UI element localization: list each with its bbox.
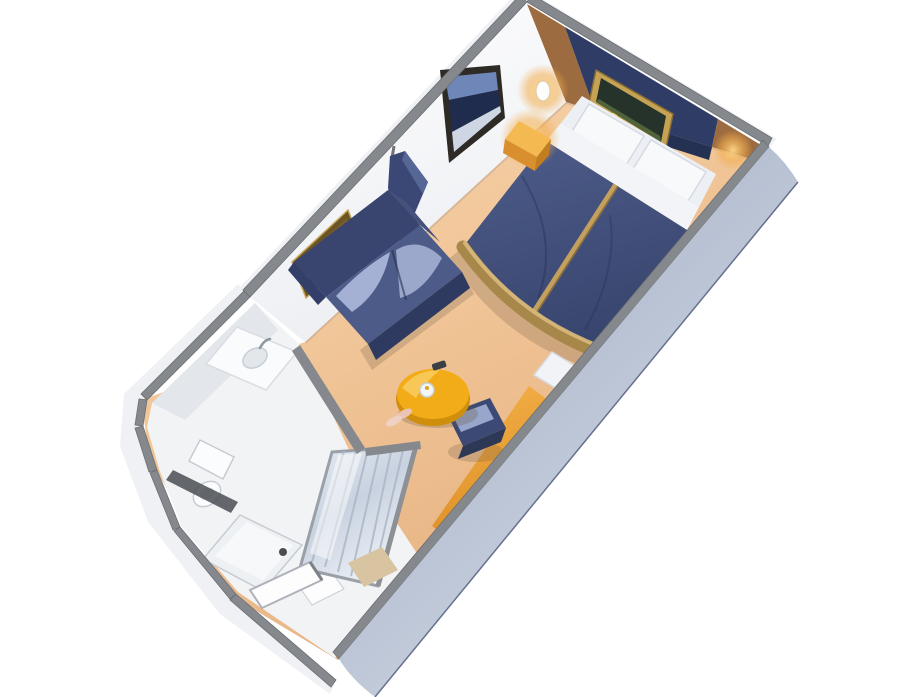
teapot-knob (425, 386, 429, 390)
shower-drain (279, 548, 287, 556)
floorplan-canvas (0, 0, 900, 697)
wall-sconce-light (536, 81, 550, 101)
stateroom-floorplan-image (0, 0, 900, 697)
